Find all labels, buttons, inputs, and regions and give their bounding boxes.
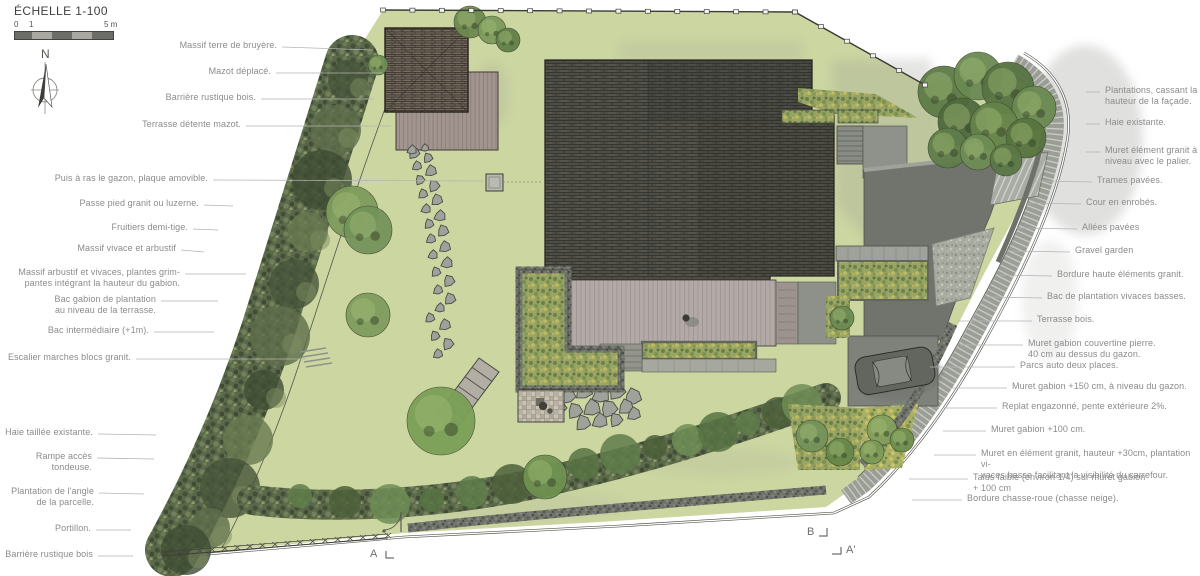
annotation-right-1: Haie existante. [1105, 117, 1166, 128]
gabion-wall-couvertine [836, 246, 928, 261]
annotation-left-13: Rampe accès tondeuse. [0, 451, 92, 473]
section-marker-B: B [807, 526, 814, 538]
annotation-right-2: Muret élément granit à niveau avec le pa… [1105, 145, 1197, 167]
annotation-left-12: Haie taillée existante. [5, 427, 93, 438]
paver-patio [518, 390, 564, 422]
annotation-right-17: Bordure chasse-roue (chasse neige). [967, 493, 1119, 504]
annotation-left-3: Terrasse détente mazot. [142, 119, 241, 130]
section-marker-A': A' [846, 544, 855, 556]
annotation-right-12: Muret gabion +150 cm, à niveau du gazon. [1012, 381, 1187, 392]
annotation-right-4: Cour en enrobés. [1086, 197, 1157, 208]
planter-strip-b [838, 110, 878, 123]
scale-tick-0: 0 [14, 20, 18, 29]
annotation-right-9: Terrasse bois. [1037, 314, 1094, 325]
annotation-left-11: Escalier marches blocs granit. [8, 352, 131, 363]
annotation-left-15: Portillon. [55, 523, 91, 534]
annotation-right-11: Parcs auto deux places. [1020, 360, 1118, 371]
scale-tick-5m: 5 m [104, 20, 117, 29]
planter-strip-below-deck [642, 342, 756, 359]
annotation-right-6: Gravel garden [1075, 245, 1133, 256]
main-house-roof [545, 60, 834, 284]
scale-label: ÉCHELLE 1-100 [14, 4, 144, 18]
annotation-right-14: Muret gabion +100 cm. [991, 424, 1085, 435]
annotation-left-7: Massif vivace et arbustif [77, 243, 176, 254]
annotation-left-10: Bac intermédiaire (+1m). [48, 325, 149, 336]
annotation-right-5: Allées pavées [1082, 222, 1139, 233]
planter-strip-a [782, 110, 834, 123]
person-figure [682, 314, 689, 321]
annotation-left-6: Fruitiers demi-tige. [111, 222, 188, 233]
section-marker-A: A [370, 548, 377, 560]
annotation-left-1: Mazot déplacé. [209, 66, 271, 77]
garden-plan-sheet: Massif terre de bruyère.Mazot déplacé.Ba… [0, 0, 1200, 576]
north-label: N [41, 47, 50, 61]
entry-stairs [837, 126, 863, 164]
scale-tick-1: 1 [29, 20, 33, 29]
annotation-right-0: Plantations, cassant la hauteur de la fa… [1105, 85, 1197, 107]
annotation-left-8: Massif arbustif et vivaces, plantes grim… [18, 267, 180, 289]
annotation-right-8: Bac de plantation vivaces basses. [1047, 291, 1186, 302]
annotation-left-0: Massif terre de bruyère. [180, 40, 277, 51]
annotation-left-14: Plantation de l'angle de la parcelle. [11, 486, 94, 508]
north-compass: N [26, 46, 66, 118]
annotation-right-10: Muret gabion couvertine pierre. 40 cm au… [1028, 338, 1156, 360]
annotation-left-9: Bac gabion de plantation au niveau de la… [55, 294, 156, 316]
annotation-left-2: Barrière rustique bois. [166, 92, 256, 103]
title-block: ÉCHELLE 1-100 0 1 5 m N [14, 4, 144, 123]
annotation-left-16: Barrière rustique bois [5, 549, 93, 560]
annotation-right-7: Bordure haute éléments granit. [1057, 269, 1184, 280]
annotation-left-4: Puis à ras le gazon, plaque amovible. [55, 173, 208, 184]
scale-ticks: 0 1 5 m [14, 20, 144, 30]
annotation-right-16: Talus faible (environ 1/4) sur muret gab… [973, 472, 1145, 494]
low-perennial-bed [838, 261, 928, 300]
paved-band-below-deck [642, 359, 776, 372]
scale-bar [14, 31, 114, 40]
wood-deck-terrace [567, 280, 836, 346]
mazot-roof [385, 28, 468, 112]
annotation-right-3: Trames pavées. [1097, 175, 1163, 186]
annotation-left-5: Passe pied granit ou luzerne. [80, 198, 199, 209]
annotation-right-13: Replat engazonné, pente extérieure 2%. [1002, 401, 1167, 412]
